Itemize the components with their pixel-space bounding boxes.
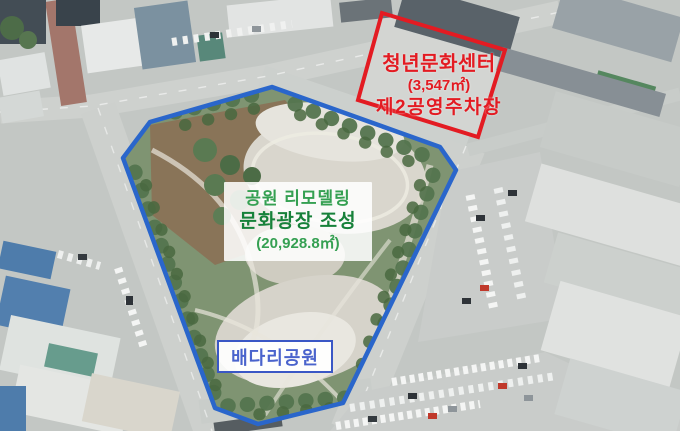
park-name-label: 배다리공원 bbox=[217, 340, 333, 373]
youth-center-title: 청년문화센터 bbox=[364, 52, 514, 76]
park-remodel-area: (20,928.8㎡) bbox=[224, 234, 372, 254]
map-annotation-figure: 청년문화센터 (3,547㎡) 제2공영주차장 공원 리모델링 문화광장 조성 … bbox=[0, 0, 680, 431]
park-remodel-line2: 문화광장 조성 bbox=[224, 210, 372, 234]
youth-center-label: 청년문화센터 (3,547㎡) 제2공영주차장 bbox=[364, 52, 514, 120]
park-remodel-label: 공원 리모델링 문화광장 조성 (20,928.8㎡) bbox=[224, 182, 372, 261]
park-remodel-line1: 공원 리모델링 bbox=[224, 188, 372, 210]
park-name-text: 배다리공원 bbox=[231, 344, 319, 370]
youth-center-area: (3,547㎡) bbox=[364, 76, 514, 96]
youth-center-subtitle: 제2공영주차장 bbox=[364, 96, 514, 120]
